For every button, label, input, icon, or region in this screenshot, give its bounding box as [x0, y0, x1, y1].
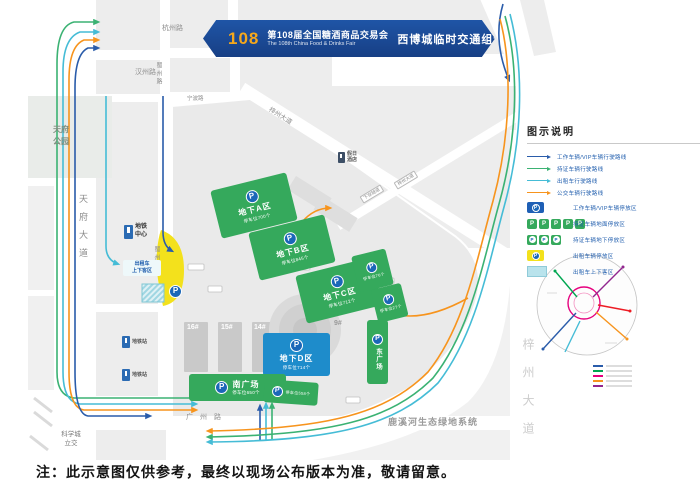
road-label-shuzhou-north: 蜀州路: [154, 62, 163, 86]
p-icon: P: [271, 386, 283, 398]
poi-label: 地铁站: [132, 339, 147, 345]
zone-capacity: 停车位558个: [285, 389, 310, 397]
vip-parking-swatch: P: [527, 202, 573, 213]
taxi-route-swatch: [527, 179, 557, 183]
legend-label: 持证车辆地面停放区: [573, 220, 625, 228]
hall-label-15: 15#: [221, 324, 233, 331]
parking-zone-southeast: P 停车位558个: [263, 379, 318, 406]
poi-label-line: 酒店: [347, 157, 357, 163]
p-icon: P: [529, 236, 536, 243]
p-icon: P: [372, 334, 383, 345]
ground-parking-swatch: PPPPP: [527, 219, 573, 229]
road-label-guangzhou: 广州路: [186, 412, 228, 422]
metro-station-icon: [122, 369, 130, 381]
inset-mini-legend: [593, 365, 632, 387]
legend-label: 公交车辆行驶路线: [557, 189, 603, 197]
permit-route-swatch: [527, 167, 557, 171]
area-label-line: 天府: [40, 124, 82, 136]
area-label-kexuecheng-interchange: 科学城 立交: [52, 430, 90, 449]
area-label-line: 立交: [52, 439, 90, 448]
legend-label: 出租车行驶路线: [557, 177, 598, 185]
p-icon: P: [215, 381, 228, 394]
zone-name: 地下D区: [280, 353, 314, 364]
legend-badge-taxi-dropoff: 出租车上下客区: [527, 265, 700, 278]
zone-name: 南广场: [232, 379, 259, 390]
p-icon: P: [553, 236, 560, 243]
hall-label-16: 16#: [187, 324, 199, 331]
fair-title-cn: 第108届全国糖酒商品交易会: [267, 30, 388, 40]
parking-zone-east-plaza: P 东广场: [367, 320, 388, 384]
taxi-parking-swatch: P: [527, 250, 573, 261]
event-banner: 108 第108届全国糖酒商品交易会 The 108th China Food …: [203, 20, 495, 57]
hotel-icon: [338, 152, 345, 163]
disclaimer-note: 注：此示意图仅供参考，最终以现场公布版本为准，敬请留意。: [36, 462, 456, 482]
taxi-dropoff-label: 出租车 上下客区: [123, 260, 161, 276]
legend-badge-ground-parking: PPPPP 持证车辆地面停放区: [527, 217, 700, 230]
metro-station-icon: [122, 336, 130, 348]
road-label-hangzhou: 杭州路: [162, 23, 183, 33]
poi-label-line: 地铁: [135, 224, 147, 232]
p-icon: P: [290, 339, 303, 352]
legend-panel: 图示说明 工作车辆/VIP车辆行驶路线 持证车辆行驶路线 出租车行驶路线 公交车…: [527, 123, 700, 278]
hall-label-9: 9#: [334, 320, 342, 327]
fair-number: 108: [228, 29, 259, 49]
vip-route-swatch: [527, 155, 557, 159]
road-label-ningbo: 宁波路: [187, 94, 204, 102]
area-label-line: 公园: [40, 136, 82, 148]
p-icon: P: [527, 219, 537, 229]
poi-label: 地铁站: [132, 372, 147, 378]
area-label-luxihe-greenbelt: 鹿溪河生态绿地系统: [388, 416, 478, 429]
p-icon: P: [532, 204, 540, 212]
poi-metro-station-b: 地铁站: [122, 369, 147, 381]
area-label-line: 科学城: [52, 430, 90, 439]
poi-label-line: 上下客区: [123, 268, 161, 275]
traffic-map-page: 108 第108届全国糖酒商品交易会 The 108th China Food …: [0, 0, 700, 495]
bus-route-swatch: [527, 191, 557, 195]
legend-badge-taxi-parking: P 出租车辆停放区: [527, 249, 700, 262]
ridehail-zone-p-icon: P: [169, 285, 182, 298]
p-icon: P: [551, 219, 561, 229]
poi-label-line: 中心: [135, 232, 147, 240]
p-icon: P: [539, 219, 549, 229]
p-icon: P: [541, 236, 548, 243]
fair-title-en: The 108th China Food & Drinks Fair: [267, 41, 388, 47]
legend-route-vip: 工作车辆/VIP车辆行驶路线: [527, 151, 700, 162]
road-label-hanzhou: 汉州路: [135, 67, 156, 77]
underground-parking-swatch: P P P: [527, 235, 573, 245]
poi-holiday-hotel: 假日酒店: [338, 151, 357, 164]
taxi-dropoff-swatch: [527, 266, 573, 277]
legend-route-bus: 公交车辆行驶路线: [527, 187, 700, 198]
legend-label: 出租车辆停放区: [573, 252, 614, 260]
poi-label-line: 出租车: [123, 261, 161, 268]
p-icon: P: [532, 252, 540, 260]
legend-label: 工作车辆/VIP车辆行驶路线: [557, 153, 627, 161]
legend-label: 持证车辆行驶路线: [557, 165, 603, 173]
legend-label: 出租车上下客区: [573, 268, 614, 276]
p-icon: P: [563, 219, 573, 229]
legend-divider: [527, 143, 700, 144]
legend-route-taxi: 出租车行驶路线: [527, 175, 700, 186]
zone-capacity: 停车位76个: [362, 271, 385, 282]
zone-name: 东广场: [373, 348, 383, 371]
legend-route-permit: 持证车辆行驶路线: [527, 163, 700, 174]
zone-capacity: 停车位714个: [283, 365, 311, 371]
legend-badge-vip-parking: P 工作车辆/VIP车辆停放区: [527, 201, 700, 214]
legend-title: 图示说明: [527, 123, 700, 138]
building-icon: [124, 225, 133, 239]
legend-label: 工作车辆/VIP车辆停放区: [573, 204, 637, 212]
zone-capacity: 停车位27个: [379, 303, 402, 314]
zone-capacity: 停车位650个: [232, 390, 260, 396]
parking-zone-underground-d: P 地下D区 停车位714个: [263, 333, 330, 376]
legend-badge-underground-parking: P P P 持证车辆地下停放区: [527, 233, 700, 246]
hall-label-14: 14#: [254, 324, 266, 331]
legend-label: 持证车辆地下停放区: [573, 236, 625, 244]
poi-metro-station-a: 地铁站: [122, 336, 147, 348]
area-label-tianfu-park: 天府 公园: [40, 124, 82, 147]
road-label-tianfu-avenue: 天府大道: [77, 194, 90, 266]
poi-metro-center: 地铁中心: [124, 224, 147, 239]
